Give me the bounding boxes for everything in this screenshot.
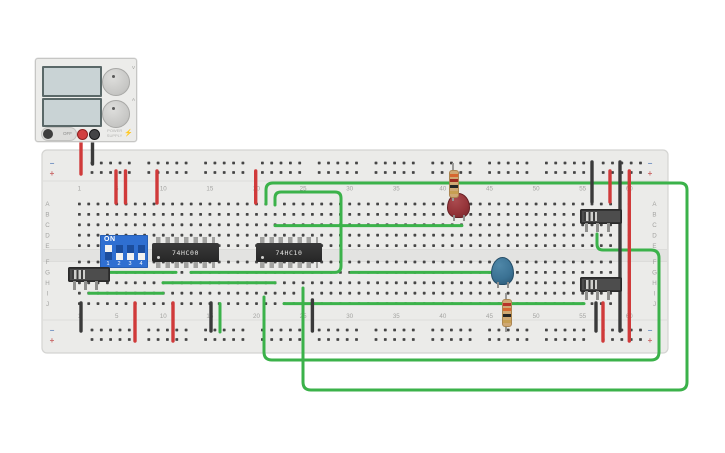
column-number: 10 (160, 313, 167, 320)
ic-74hc10[interactable]: 74HC10 (256, 243, 322, 262)
current-knob[interactable]: A (102, 100, 130, 128)
circuit-canvas: −+−+−+−+11551010151520202525303035354040… (0, 0, 725, 453)
rail-label: − (648, 326, 653, 335)
row-letter: I (47, 290, 49, 297)
resistor-band (503, 314, 511, 317)
resistor-band (450, 191, 458, 194)
rail-label: + (50, 336, 55, 345)
resistor-body (502, 299, 512, 327)
column-number: 45 (486, 313, 493, 320)
column-number: 5 (115, 313, 119, 320)
rail-label: + (50, 169, 55, 178)
dip-slider-3[interactable] (127, 253, 134, 260)
dip-position-label: 4 (138, 261, 145, 267)
row-letter: F (46, 259, 50, 266)
dip-position-label: 3 (127, 261, 134, 267)
resistor-band (503, 320, 511, 323)
column-number: 35 (393, 313, 400, 320)
voltage-knob[interactable]: V (102, 68, 130, 96)
column-number: 50 (533, 186, 540, 193)
voltage-knob-label: V (132, 65, 135, 70)
dip-channel-3[interactable] (127, 245, 134, 260)
resistor-band (503, 308, 511, 311)
switch-knob[interactable] (584, 280, 597, 289)
pin1-dot (157, 256, 160, 259)
column-number: 35 (393, 186, 400, 193)
power-toggle[interactable]: OFF (41, 127, 77, 141)
switch-knob[interactable] (584, 212, 597, 221)
blue-led[interactable] (491, 257, 514, 285)
current-knob-label: A (132, 97, 135, 102)
ic-label: 74HC00 (172, 249, 199, 257)
psu-caption: POWERSUPPLY ⚡ (107, 129, 133, 139)
row-letter: B (45, 212, 49, 219)
column-number: 15 (206, 186, 213, 193)
psu-current-display (42, 98, 102, 127)
dip-on-label: ON (104, 236, 116, 243)
resistor-band (450, 174, 458, 177)
power-supply[interactable]: V A OFF POWERSUPPLY ⚡ (35, 58, 137, 142)
row-letter: I (654, 290, 656, 297)
bolt-icon: ⚡ (124, 130, 133, 138)
dip-slider-4[interactable] (138, 253, 145, 260)
row-letter: D (652, 232, 657, 239)
column-number: 40 (439, 313, 446, 320)
column-number: 50 (533, 313, 540, 320)
dip-channel-2[interactable] (116, 245, 123, 260)
row-letter: H (45, 280, 49, 287)
positive-terminal[interactable] (77, 129, 88, 140)
dip-slider-2[interactable] (116, 253, 123, 260)
dip-switch[interactable]: ON 1234 (100, 235, 148, 268)
resistor-body (449, 170, 459, 198)
pin1-dot (261, 256, 264, 259)
dip-slider-1[interactable] (105, 245, 112, 252)
resistor-top[interactable] (449, 163, 457, 201)
row-letter: C (45, 222, 50, 229)
column-number: 20 (253, 313, 260, 320)
psu-voltage-display (42, 66, 102, 97)
column-number: 45 (486, 186, 493, 193)
row-letter: E (45, 243, 49, 250)
slide-switch-right-upper[interactable] (580, 209, 622, 224)
row-letter: J (46, 301, 49, 308)
column-number: 40 (439, 186, 446, 193)
slide-switch-right-lower[interactable] (580, 277, 622, 292)
dip-channel-4[interactable] (138, 245, 145, 260)
power-toggle-knob[interactable] (43, 129, 53, 139)
row-letter: J (653, 301, 656, 308)
dip-position-label: 2 (116, 261, 123, 267)
column-number: 30 (346, 186, 353, 193)
column-number: 55 (579, 313, 586, 320)
dip-channel-1[interactable] (105, 245, 112, 260)
resistor-bottom[interactable] (502, 293, 510, 332)
resistor-band (503, 303, 511, 306)
column-number: 55 (579, 186, 586, 193)
column-number: 1 (78, 186, 82, 193)
rail-label: − (50, 159, 55, 168)
negative-terminal[interactable] (89, 129, 100, 140)
row-letter: H (652, 280, 656, 287)
row-letter: F (653, 259, 657, 266)
resistor-band (450, 185, 458, 188)
rail-label: + (648, 169, 653, 178)
power-toggle-label: OFF (63, 131, 72, 136)
rail-label: − (648, 159, 653, 168)
slide-switch-left[interactable] (68, 267, 110, 282)
rail-label: − (50, 326, 55, 335)
row-letter: D (45, 232, 50, 239)
switch-knob[interactable] (72, 270, 85, 279)
row-letter: G (652, 270, 657, 277)
row-letter: B (652, 212, 656, 219)
column-number: 10 (160, 186, 167, 193)
ic-74hc00[interactable]: 74HC00 (152, 243, 219, 262)
row-letter: G (45, 270, 50, 277)
row-letter: C (652, 222, 657, 229)
resistor-band (450, 179, 458, 182)
column-number: 30 (346, 313, 353, 320)
ic-label: 74HC10 (275, 249, 302, 257)
rail-label: + (648, 336, 653, 345)
